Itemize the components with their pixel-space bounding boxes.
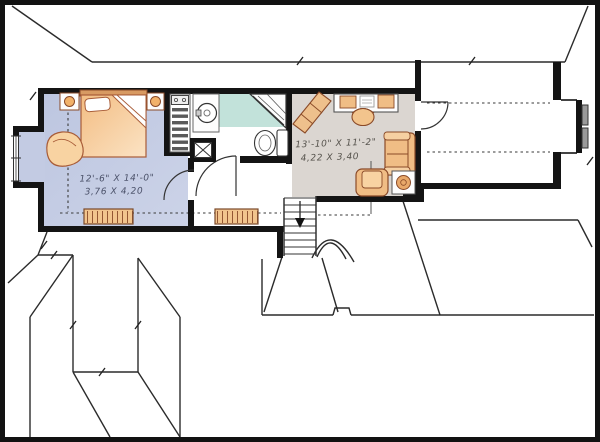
wall-closet-left [164, 88, 170, 156]
wall-bathroom-bottom [240, 156, 292, 163]
attic-door [421, 102, 448, 129]
wall-attic-bottom [421, 183, 557, 189]
attic-window-icon [582, 105, 588, 125]
toilet-icon [255, 130, 289, 156]
roof-hip-top-right [565, 6, 588, 62]
side-table [392, 171, 415, 194]
bedroom-dim-metric: 3,76 X 4,20 [85, 186, 144, 197]
nightstand-right [147, 93, 164, 110]
attic-window-bay [561, 100, 588, 153]
laptop-icon [340, 96, 356, 108]
floorplan-canvas: 12'-6" X 14'-0" 3,76 X 4,20 13'-10" X 11… [0, 0, 600, 442]
sofa [384, 132, 415, 175]
armchair [356, 169, 388, 196]
roof-hip-top-left [12, 6, 92, 62]
wall-family-right-upper [415, 60, 421, 101]
lamp-icon [65, 97, 75, 107]
wall-stairwell-left [277, 232, 283, 258]
floorplan-drawing: 12'-6" X 14'-0" 3,76 X 4,20 13'-10" X 11… [0, 0, 600, 442]
bed [80, 90, 147, 157]
bedroom-dim-imperial: 12'-6" X 14'-0" [79, 173, 154, 184]
staircase [284, 196, 316, 256]
bed-pillow [85, 97, 111, 112]
plant-icon [397, 176, 411, 190]
office-chair [352, 109, 374, 126]
laundry-chute [190, 138, 216, 162]
low-dresser-hall [215, 209, 258, 224]
family-room-dim-metric: 4,22 X 3,40 [300, 152, 359, 164]
wall-bottom [38, 226, 284, 232]
linen-closet [170, 94, 190, 152]
bedroom-alcove-floor [19, 130, 45, 184]
corner-armchair [47, 132, 83, 166]
low-dresser-left [84, 209, 133, 224]
nightstand-left [60, 93, 79, 110]
papers-icon [360, 96, 374, 107]
lamp-icon [151, 97, 161, 107]
